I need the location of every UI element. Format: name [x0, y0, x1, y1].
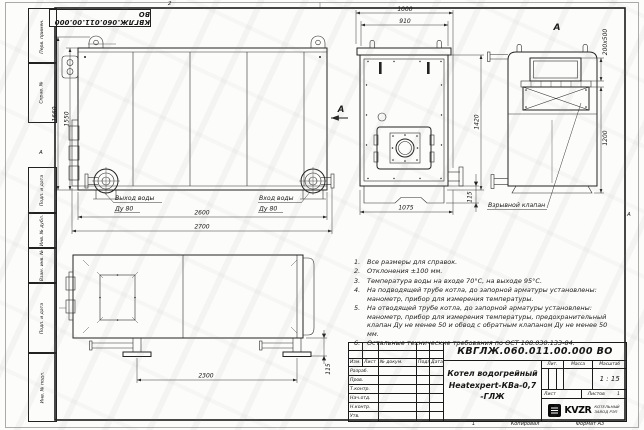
company-block: KVZR КОТЕЛЬНЫЙ ЗАВОД РЭП: [542, 399, 626, 421]
field-inv-dubl: Инв. № дубл.: [28, 212, 57, 249]
field-label: Подп. и дата: [40, 175, 45, 206]
dim-plan-foot: 115: [325, 363, 332, 375]
burner-door: [377, 127, 431, 169]
title-doc-number: КВГЛЖ.060.011.00.000 ВО: [443, 343, 626, 361]
copied-label: Копировал: [500, 421, 550, 427]
field-label: Инв. № подл.: [40, 371, 45, 403]
outlet-flange: [85, 167, 120, 195]
explosion-valve: [523, 87, 589, 110]
inlet-dn-label: Ду 80: [258, 206, 277, 213]
dim-front-width-inner: 2600: [194, 210, 209, 217]
row-tkontr: Т.контр.: [349, 385, 379, 394]
row-nachotd: Нач.отд.: [349, 394, 379, 403]
front-view: 1660 1550 2600 2700 Выход воды Ду 80 Вхо…: [52, 36, 335, 234]
note-item: Отклонения ±100 мм.: [353, 267, 617, 275]
col-list: Лист: [363, 359, 379, 367]
mass-cell: [564, 369, 594, 389]
lit-label: Лит.: [542, 361, 564, 368]
mass-label: Масса: [564, 361, 594, 368]
outlet-label: Выход воды: [115, 195, 155, 202]
title-right-block: Лит. Масса Масштаб 1 : 15 Лист Листов 1: [541, 361, 626, 421]
sheets-value: 1: [617, 392, 620, 397]
field-inv-podl: Инв. № подл.: [28, 352, 57, 422]
revision-table: Изм. Лист № докум. Подп. Дата Разраб. Пр…: [349, 343, 443, 421]
lifting-lug: [311, 36, 325, 48]
dim-side-bottom: 1075: [398, 205, 413, 212]
foot-plate: [123, 352, 151, 357]
title-block: КВГЛЖ.060.011.00.000 ВО Изм. Лист № доку…: [348, 342, 627, 422]
inlet-label: Вход воды: [259, 195, 294, 202]
rear-window: [530, 58, 581, 81]
sheet-mark: 1: [472, 421, 475, 427]
note-item: Температура воды на входе 70°С, на выход…: [353, 277, 617, 285]
technical-notes: Все размеры для справок. Отклонения ±100…: [353, 258, 617, 348]
top-hatch: [100, 275, 135, 320]
row-utv: Утв.: [349, 412, 379, 421]
row-razrab: Разраб.: [349, 367, 379, 376]
dim-view-a-height: 1200: [602, 130, 609, 145]
format-label: Формат А3: [565, 421, 615, 427]
section-arrow-label: А: [337, 105, 345, 115]
view-a: А: [487, 23, 609, 210]
dim-front-width-outer: 2700: [194, 224, 209, 231]
sheet-label: Лист: [542, 390, 582, 398]
burner-flange: [390, 133, 420, 163]
field-podp-data-1: Подп. и дата: [28, 167, 57, 214]
field-label: Справ. №: [40, 81, 45, 103]
sheets-label: Листов: [588, 392, 605, 397]
top-stamp: КВГЛЖ.060.011.00.000 ВО: [49, 9, 151, 27]
note-item: На подводящей трубе котла, до запорной а…: [353, 286, 617, 303]
col-izm: Изм.: [349, 359, 363, 367]
field-label: Подп. и дата: [40, 302, 45, 333]
field-podp-data-2: Подп. и дата: [28, 282, 57, 354]
dim-side-foot: 115: [467, 191, 474, 203]
lifting-lug: [89, 36, 103, 48]
pedestal: [364, 186, 444, 203]
field-label: Взам. инв. №: [40, 250, 45, 281]
field-label: Перв. примен.: [40, 19, 45, 54]
outlet-dn-label: Ду 80: [114, 206, 133, 213]
field-label: Инв. № дубл.: [40, 215, 45, 246]
col-docnum: № докум.: [379, 359, 417, 367]
kvzr-logo-icon: [548, 404, 561, 417]
field-vzam-inv: Взам. инв. №: [28, 247, 57, 284]
dim-side-top-outer: 1000: [397, 6, 412, 13]
scale-value: 1 : 15: [593, 369, 626, 389]
pipe-stub-flange: [459, 167, 463, 186]
row-prov: Пров.: [349, 376, 379, 385]
dim-side-height: 1420: [474, 114, 481, 129]
note-item: На отводящей трубе котла, до запорной ар…: [353, 304, 617, 338]
product-name-line2: Heatexpert-КВа-0,7 -ГЛЖ: [444, 380, 541, 403]
dim-front-height-inner: 1550: [64, 111, 71, 126]
drawing-sheet: 1660 1550 2600 2700 Выход воды Ду 80 Вхо…: [0, 0, 644, 430]
scale-label: Масштаб: [593, 361, 626, 368]
zone-marker-right: А: [627, 212, 631, 218]
explosion-valve-label: Взрывной клапан: [488, 202, 545, 209]
product-name: Котел водогрейный Heatexpert-КВа-0,7 -ГЛ…: [443, 361, 541, 421]
col-data: Дата: [430, 359, 443, 367]
plan-view: 2300 115: [59, 255, 332, 383]
side-view: 1000 910 1420 115 1075 А: [331, 6, 484, 215]
lit-cells: [542, 369, 564, 389]
company-logo-text: KVZR: [564, 405, 591, 416]
zone-marker-top: 2: [168, 1, 172, 7]
field-perv-primen: Перв. примен.: [28, 8, 57, 64]
row-nkontr: Н.контр.: [349, 403, 379, 412]
zone-marker-left: А: [39, 150, 43, 156]
foot-plate: [283, 352, 311, 357]
dim-valve-size: 200х500: [602, 29, 609, 56]
field-sprav-no: Справ. №: [28, 62, 57, 123]
company-name-line2: ЗАВОД РЭП: [594, 410, 619, 415]
note-item: Все размеры для справок.: [353, 258, 617, 266]
col-podp: Подп.: [417, 359, 430, 367]
view-a-title: А: [553, 23, 561, 33]
dim-side-top-inner: 910: [399, 18, 411, 25]
dim-plan-length: 2300: [198, 373, 213, 380]
product-name-line1: Котел водогрейный: [444, 368, 541, 380]
